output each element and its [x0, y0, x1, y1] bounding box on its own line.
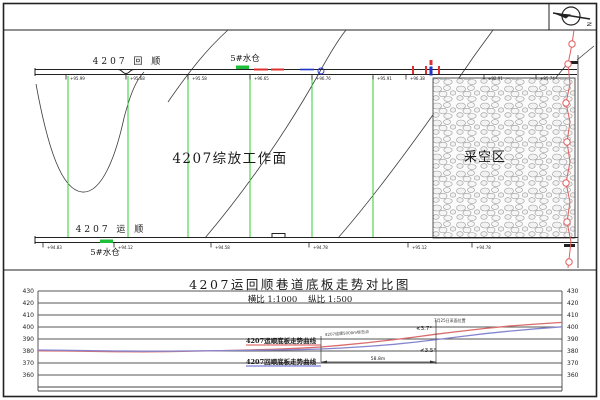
marker-annotation: 4207运顺5000m标志点 — [325, 328, 370, 337]
tunnel-notch — [272, 234, 285, 238]
axis-tick-label: 390 — [567, 336, 579, 343]
sump-mark — [236, 66, 249, 70]
chart-annotations: 4207运顺5000m标志点 7月25日采面位置 ≮3.7° ≮3.5° 58.… — [321, 317, 466, 364]
chart-title: 4207运回顺巷道底板走势对比图 — [189, 277, 411, 292]
axis-tick-label: 370 — [23, 360, 35, 367]
upper-sump-label: 5#水仓 — [230, 53, 260, 64]
plan-view: 采空区 4207 回 顺 4207 运 顺 4207综放工作面 5#水仓 — [4, 30, 596, 270]
station-label: +94.58 — [215, 245, 230, 250]
axis-tick-label: 420 — [567, 300, 579, 307]
upper-water-sump: 5#水仓 — [230, 53, 284, 70]
upper-tunnel: 4207 回 顺 — [35, 56, 577, 76]
axis-tick-label: 390 — [23, 336, 35, 343]
station-label: +94.12 — [118, 245, 133, 250]
axis-tick-label: 400 — [23, 324, 35, 331]
station-label: +95.68 — [130, 76, 145, 81]
station-label: +96.65 — [254, 76, 269, 81]
angle-bottom-label: ≮3.5° — [420, 348, 436, 354]
dimension-line: 58.8m — [321, 356, 436, 364]
compass-n-label: N — [585, 22, 592, 27]
tunnel-notch — [118, 70, 134, 74]
goaf-area: 采空区 — [433, 78, 575, 238]
goaf-label: 采空区 — [464, 150, 506, 165]
station-label: +92.91 — [488, 76, 503, 81]
sump-mark — [100, 240, 113, 244]
axis-tick-label: 360 — [23, 372, 35, 379]
north-compass-icon: N — [553, 7, 592, 27]
left-axis-labels: 430420410400390380370360 — [23, 288, 35, 379]
trend-chart: 4207运回顺巷道底板走势对比图 横比 1:1000 纵比 1:500 4304… — [23, 277, 579, 391]
blue-curve-label: 4207回顺底板走势曲线 — [246, 357, 317, 366]
right-axis-labels: 430420410400390380370360 — [567, 288, 579, 379]
lower-tunnel-label: 4207 运 顺 — [76, 224, 147, 235]
tunnel-marks — [300, 60, 439, 76]
axis-tick-label: 430 — [567, 288, 579, 295]
axis-tick-label: 380 — [23, 348, 35, 355]
working-face-label: 4207综放工作面 — [172, 151, 287, 167]
axis-tick-label: 420 — [23, 300, 35, 307]
station-label: +95.91 — [377, 76, 392, 81]
station-label: +95.12 — [412, 245, 427, 250]
axis-tick-label: 410 — [567, 312, 579, 319]
station-label: +94.78 — [476, 245, 491, 250]
axis-tick-label: 400 — [567, 324, 579, 331]
station-label: +96.76 — [316, 76, 331, 81]
red-curve-label: 4207运顺底板走势曲线 — [246, 336, 317, 345]
upper-tunnel-label: 4207 回 顺 — [93, 56, 164, 67]
station-label: +94.78 — [313, 245, 328, 250]
face-end-mark — [564, 244, 575, 247]
axis-tick-label: 410 — [23, 312, 35, 319]
axis-tick-label: 370 — [567, 360, 579, 367]
station-label: +95.74 — [540, 76, 555, 81]
lower-sump-label: 5#水仓 — [90, 247, 120, 258]
drawing-canvas: N 采空区 — [0, 0, 600, 400]
station-label: +94.83 — [47, 245, 62, 250]
face-position-annotation: 7月25日采面位置 — [434, 317, 466, 323]
axis-tick-label: 360 — [567, 372, 579, 379]
station-label: +95.99 — [70, 76, 85, 81]
axis-tick-label: 380 — [567, 348, 579, 355]
drawing-sheet: N 采空区 — [0, 0, 600, 400]
station-label: +96.38 — [410, 76, 425, 81]
dimension-label: 58.8m — [371, 356, 385, 362]
station-label: +95.58 — [192, 76, 207, 81]
angle-top-label: ≮3.7° — [416, 326, 432, 332]
axis-tick-label: 430 — [23, 288, 35, 295]
